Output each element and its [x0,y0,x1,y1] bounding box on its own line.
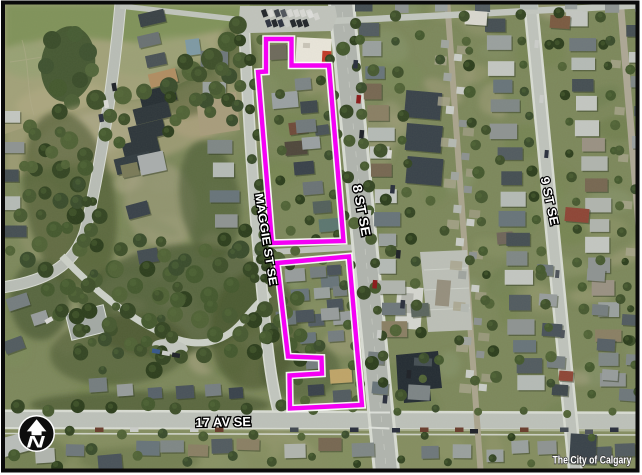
svg-text:N: N [27,432,46,451]
svg-text:17 AV SE: 17 AV SE [195,414,251,430]
svg-text:The City of Calgary: The City of Calgary [553,455,633,467]
